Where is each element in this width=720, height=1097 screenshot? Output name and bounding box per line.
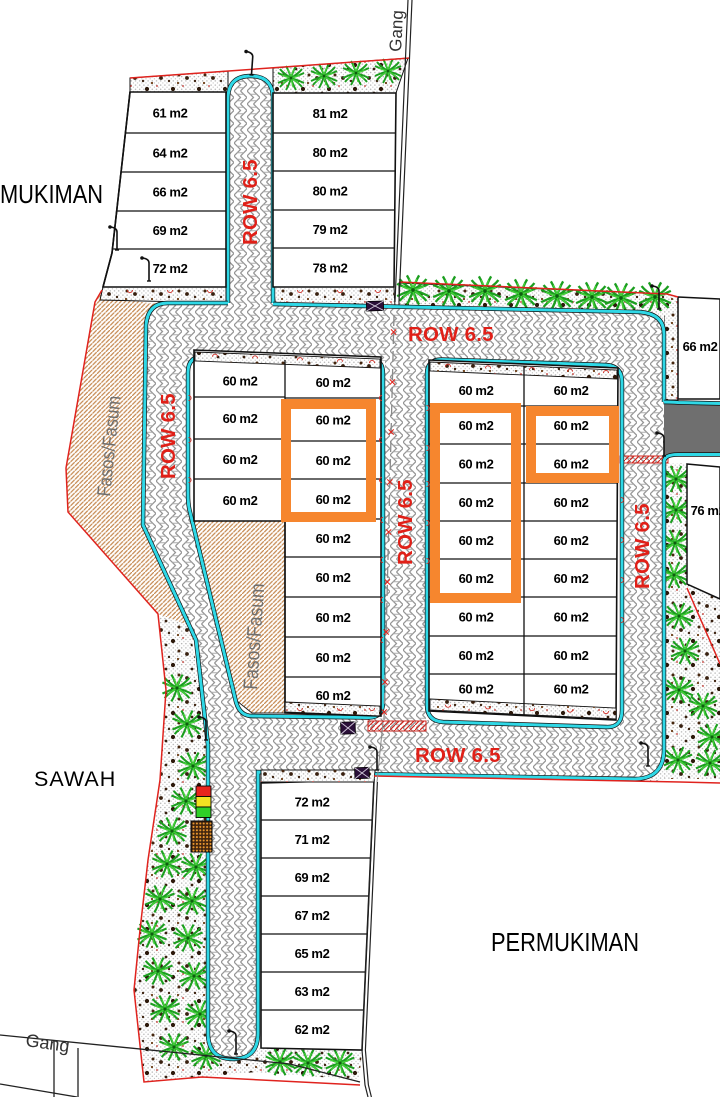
svg-text:ROW 6.5: ROW 6.5 <box>157 393 180 479</box>
svg-text:ROW 6.5: ROW 6.5 <box>415 744 501 767</box>
svg-text:66 m2: 66 m2 <box>683 339 718 354</box>
svg-text:72 m2: 72 m2 <box>153 261 188 276</box>
svg-text:60 m2: 60 m2 <box>554 418 589 433</box>
svg-text:ROW 6.5: ROW 6.5 <box>394 479 417 565</box>
svg-text:60 m2: 60 m2 <box>459 457 494 472</box>
svg-text:65 m2: 65 m2 <box>295 946 330 961</box>
svg-text:61 m2: 61 m2 <box>153 106 188 121</box>
svg-text:64 m2: 64 m2 <box>153 146 188 161</box>
svg-text:69 m2: 69 m2 <box>153 223 188 238</box>
svg-text:60 m2: 60 m2 <box>316 413 351 428</box>
svg-text:60 m2: 60 m2 <box>459 648 494 663</box>
svg-text:60 m2: 60 m2 <box>459 610 494 625</box>
svg-text:63 m2: 63 m2 <box>295 984 330 999</box>
svg-text:60 m2: 60 m2 <box>223 493 258 508</box>
svg-text:60 m2: 60 m2 <box>316 570 351 585</box>
svg-text:60 m2: 60 m2 <box>554 682 589 697</box>
svg-text:SAWAH: SAWAH <box>34 767 116 791</box>
svg-text:60 m2: 60 m2 <box>459 571 494 586</box>
svg-text:60 m2: 60 m2 <box>554 610 589 625</box>
svg-text:60 m2: 60 m2 <box>459 533 494 548</box>
svg-text:72 m2: 72 m2 <box>295 795 330 810</box>
svg-text:Gang: Gang <box>386 10 407 53</box>
svg-text:ROW 6.5: ROW 6.5 <box>239 159 262 245</box>
svg-text:60 m2: 60 m2 <box>459 682 494 697</box>
svg-text:60 m2: 60 m2 <box>459 418 494 433</box>
svg-text:PERMUKIMAN: PERMUKIMAN <box>0 180 103 209</box>
svg-text:60 m2: 60 m2 <box>459 383 494 398</box>
svg-text:79 m2: 79 m2 <box>313 222 348 237</box>
svg-text:60 m2: 60 m2 <box>554 495 589 510</box>
svg-text:ROW 6.5: ROW 6.5 <box>408 323 494 346</box>
svg-text:71 m2: 71 m2 <box>295 832 330 847</box>
svg-text:ROW 6.5: ROW 6.5 <box>631 503 654 589</box>
svg-text:81 m2: 81 m2 <box>313 106 348 121</box>
svg-text:60 m2: 60 m2 <box>316 375 351 390</box>
svg-text:69 m2: 69 m2 <box>295 870 330 885</box>
svg-text:60 m2: 60 m2 <box>316 610 351 625</box>
svg-text:60 m2: 60 m2 <box>316 531 351 546</box>
svg-text:60 m2: 60 m2 <box>554 383 589 398</box>
svg-text:60 m2: 60 m2 <box>554 457 589 472</box>
svg-text:78 m2: 78 m2 <box>313 261 348 276</box>
svg-text:60 m2: 60 m2 <box>223 374 258 389</box>
svg-text:66 m2: 66 m2 <box>153 185 188 200</box>
svg-text:PERMUKIMAN: PERMUKIMAN <box>491 928 639 957</box>
svg-text:60 m2: 60 m2 <box>316 453 351 468</box>
svg-text:60 m2: 60 m2 <box>223 452 258 467</box>
svg-text:67 m2: 67 m2 <box>295 908 330 923</box>
svg-text:60 m2: 60 m2 <box>554 571 589 586</box>
svg-text:62 m2: 62 m2 <box>295 1022 330 1037</box>
svg-text:60 m2: 60 m2 <box>554 648 589 663</box>
svg-text:60 m2: 60 m2 <box>316 688 351 703</box>
svg-text:60 m2: 60 m2 <box>316 492 351 507</box>
svg-text:60 m2: 60 m2 <box>554 533 589 548</box>
svg-text:76 m2: 76 m2 <box>691 503 720 518</box>
svg-text:60 m2: 60 m2 <box>316 650 351 665</box>
svg-text:80 m2: 80 m2 <box>313 145 348 160</box>
svg-text:60 m2: 60 m2 <box>223 411 258 426</box>
svg-text:60 m2: 60 m2 <box>459 495 494 510</box>
svg-text:80 m2: 80 m2 <box>313 184 348 199</box>
